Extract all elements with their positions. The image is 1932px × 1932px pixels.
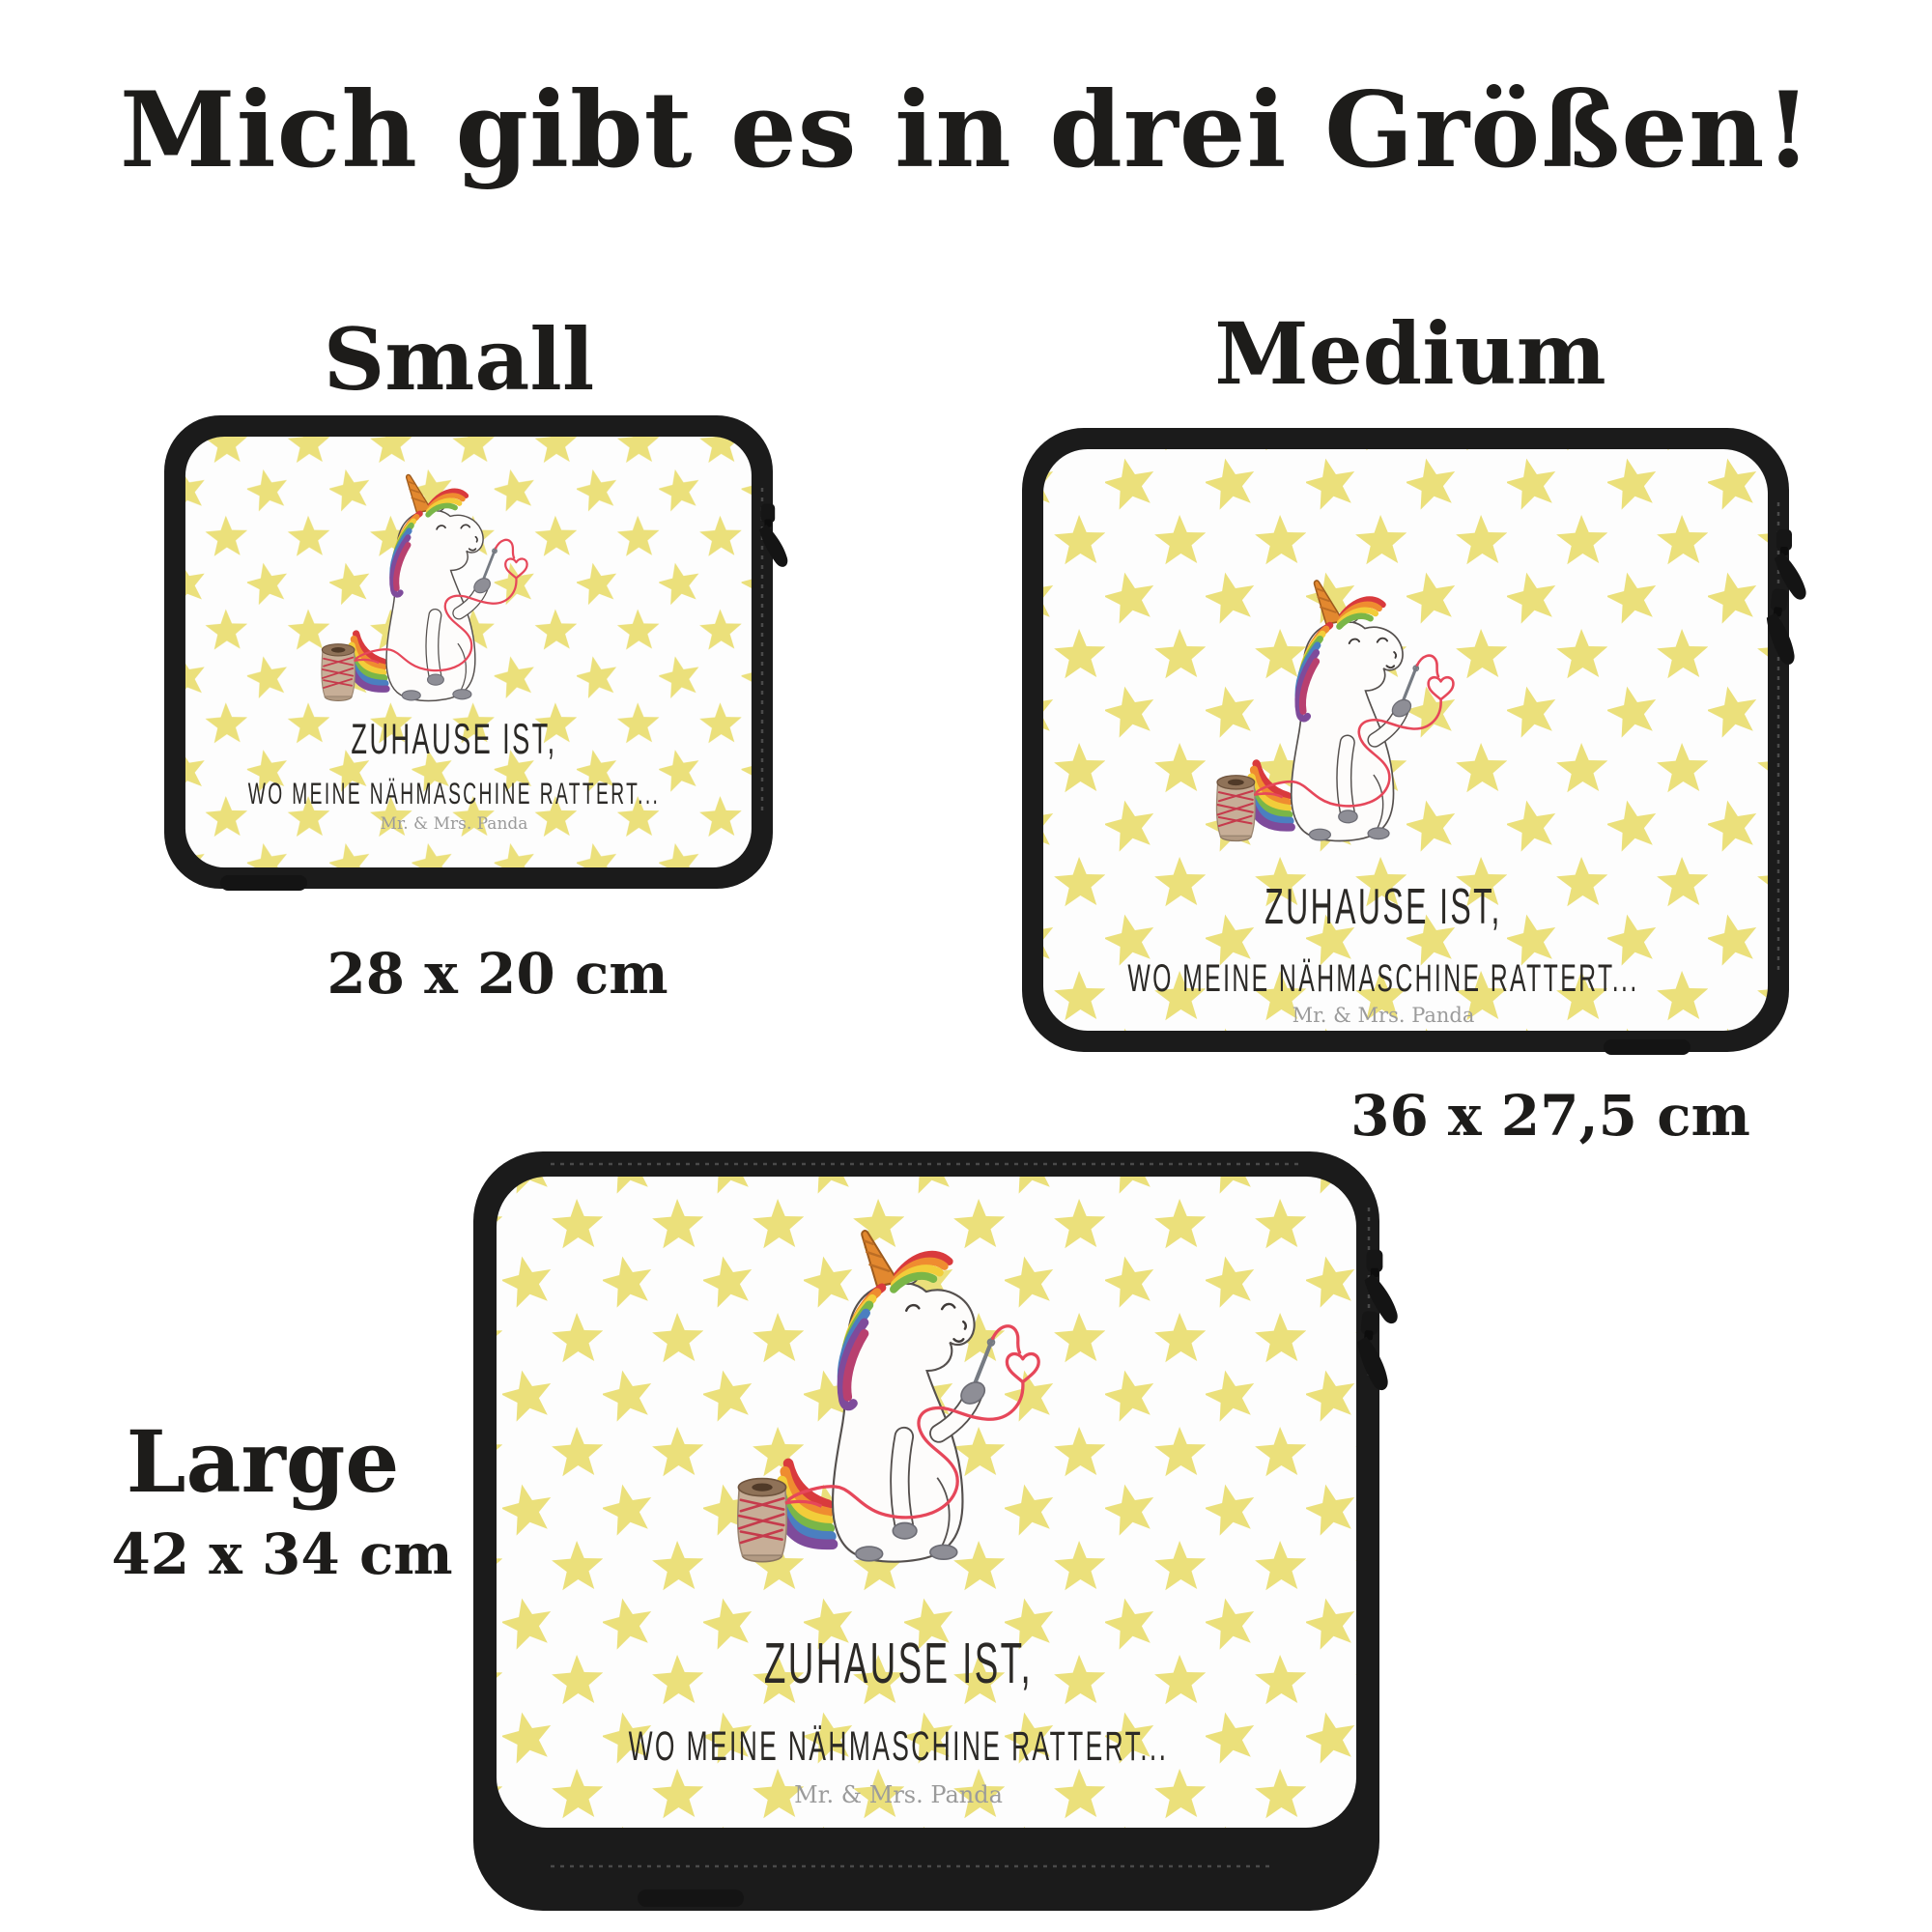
quote-line-1: ZUHAUSE IST, [1264, 879, 1502, 935]
quote-line-1: ZUHAUSE IST, [351, 715, 556, 762]
sleeve-small-image: ZUHAUSE IST, WO MEINE NÄHMASCHINE RATTER… [164, 415, 787, 891]
sleeve-large-image: ZUHAUSE IST, WO MEINE NÄHMASCHINE RATTER… [473, 1151, 1398, 1911]
zipper-tab [638, 1889, 744, 1907]
quote-line-1: ZUHAUSE IST, [764, 1631, 1033, 1695]
brand-text: Mr. & Mrs. Panda [381, 814, 528, 834]
sleeve-panel [1043, 449, 1768, 1031]
quote-line-2: WO MEINE NÄHMASCHINE RATTERT... [1127, 957, 1638, 1001]
quote-line-2: WO MEINE NÄHMASCHINE RATTERT... [629, 1722, 1169, 1769]
brand-text: Mr. & Mrs. Panda [794, 1781, 1003, 1808]
brand-text: Mr. & Mrs. Panda [1293, 1004, 1475, 1027]
product-scene: ZUHAUSE IST, WO MEINE NÄHMASCHINE RATTER… [0, 0, 1932, 1932]
zipper-tab [1604, 1039, 1690, 1055]
sleeve-medium-image: ZUHAUSE IST, WO MEINE NÄHMASCHINE RATTER… [1022, 428, 1806, 1055]
quote-line-2: WO MEINE NÄHMASCHINE RATTERT... [248, 779, 661, 811]
zipper-tab [220, 875, 307, 891]
